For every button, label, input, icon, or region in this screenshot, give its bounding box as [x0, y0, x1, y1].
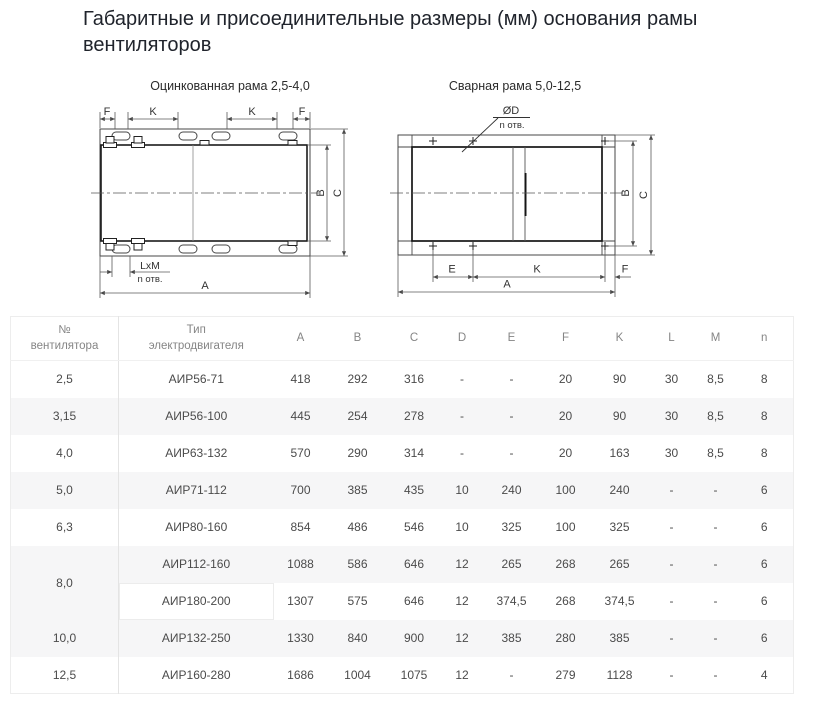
- page-title: Габаритные и присоединительные размеры (…: [83, 6, 743, 59]
- dimension-cell: 900: [388, 620, 441, 657]
- dim-label-c: C: [332, 189, 344, 197]
- dimension-cell: 385: [592, 620, 648, 657]
- dimension-cell: -: [441, 398, 484, 435]
- dimension-cell: 12: [441, 546, 484, 583]
- motor-type-cell: АИР56-71: [119, 361, 274, 398]
- dimension-cell: 8: [736, 361, 794, 398]
- dimension-cell: -: [484, 398, 540, 435]
- dimension-cell: 385: [484, 620, 540, 657]
- table-row: 8,0АИР112-160108858664612265268265--6: [11, 546, 794, 583]
- table-row: 5,0АИР71-11270038543510240100240--6: [11, 472, 794, 509]
- dim-label-f-right: F: [299, 106, 306, 118]
- welded-diagram-title: Сварная рама 5,0-12,5: [449, 79, 581, 93]
- holes-note-right: n отв.: [499, 120, 524, 131]
- dimension-cell: 6: [736, 583, 794, 620]
- dimension-cell: 385: [328, 472, 388, 509]
- dimension-cell: 1128: [592, 657, 648, 694]
- column-header: K: [592, 317, 648, 361]
- column-header: A: [274, 317, 328, 361]
- dimension-cell: 575: [328, 583, 388, 620]
- dimension-cell: 268: [540, 583, 592, 620]
- dimension-cell: 240: [592, 472, 648, 509]
- column-header: n: [736, 317, 794, 361]
- dimension-cell: 486: [328, 509, 388, 546]
- dimension-cell: -: [648, 546, 696, 583]
- dimension-cell: 840: [328, 620, 388, 657]
- dim-label-k-left: K: [149, 106, 157, 118]
- dimension-cell: 8: [736, 398, 794, 435]
- column-header: № вентилятора: [11, 317, 119, 361]
- dimension-cell: 90: [592, 398, 648, 435]
- dimension-cell: 418: [274, 361, 328, 398]
- dim-label-a: A: [503, 279, 511, 291]
- dimension-cell: -: [696, 546, 736, 583]
- dimensions-table-wrapper: № вентилятораТип электродвигателяABCDEFK…: [10, 316, 793, 694]
- dimension-cell: 240: [484, 472, 540, 509]
- dimension-cell: 546: [388, 509, 441, 546]
- dim-label-b: B: [620, 189, 632, 196]
- column-header: L: [648, 317, 696, 361]
- dimension-cell: 1330: [274, 620, 328, 657]
- dimension-cell: 8,5: [696, 361, 736, 398]
- table-row: 12,5АИР160-28016861004107512-2791128--4: [11, 657, 794, 694]
- table-row: 6,3АИР80-16085448654610325100325--6: [11, 509, 794, 546]
- dimension-cell: 1075: [388, 657, 441, 694]
- dimension-cell: 12: [441, 583, 484, 620]
- column-header: D: [441, 317, 484, 361]
- dimension-cell: 325: [484, 509, 540, 546]
- dimension-cell: 12: [441, 620, 484, 657]
- dimension-cell: 12: [441, 657, 484, 694]
- column-header: E: [484, 317, 540, 361]
- catalog-page: Габаритные и присоединительные размеры (…: [0, 0, 818, 702]
- dimension-cell: 1088: [274, 546, 328, 583]
- galvanized-frame-drawing: [91, 129, 319, 256]
- dimension-cell: 6: [736, 509, 794, 546]
- table-body: 2,5АИР56-71418292316--2090308,583,15АИР5…: [11, 361, 794, 694]
- welded-frame-drawing: [390, 118, 625, 256]
- motor-type-cell: АИР112-160: [119, 546, 274, 583]
- dimension-cell: -: [648, 472, 696, 509]
- dimension-cell: -: [484, 435, 540, 472]
- dimension-cell: 30: [648, 398, 696, 435]
- fan-number-cell: 2,5: [11, 361, 119, 398]
- column-header: C: [388, 317, 441, 361]
- dimension-cell: -: [648, 620, 696, 657]
- dimension-cell: 20: [540, 398, 592, 435]
- dimension-cell: -: [441, 435, 484, 472]
- dimension-cell: 20: [540, 361, 592, 398]
- dimension-cell: -: [484, 657, 540, 694]
- dimension-cell: 100: [540, 509, 592, 546]
- table-header-row: № вентилятораТип электродвигателяABCDEFK…: [11, 317, 794, 361]
- dimensions-table: № вентилятораТип электродвигателяABCDEFK…: [10, 316, 794, 694]
- dim-label-k: K: [533, 264, 541, 276]
- dimension-cell: 268: [540, 546, 592, 583]
- dimension-cell: 316: [388, 361, 441, 398]
- dimension-cell: 854: [274, 509, 328, 546]
- dimension-cell: -: [484, 361, 540, 398]
- motor-type-cell: АИР80-160: [119, 509, 274, 546]
- dimension-cell: 646: [388, 546, 441, 583]
- column-header: Тип электродвигателя: [119, 317, 274, 361]
- fan-number-cell: 3,15: [11, 398, 119, 435]
- dimension-cell: 8: [736, 435, 794, 472]
- dimension-cell: 8,5: [696, 398, 736, 435]
- table-row: 10,0АИР132-250133084090012385280385--6: [11, 620, 794, 657]
- dimension-cell: -: [648, 583, 696, 620]
- table-row: 4,0АИР63-132570290314--20163308,58: [11, 435, 794, 472]
- dimension-cell: 6: [736, 546, 794, 583]
- dimension-cell: 10: [441, 509, 484, 546]
- dimension-cell: 374,5: [484, 583, 540, 620]
- dimension-cell: 280: [540, 620, 592, 657]
- motor-type-cell: АИР71-112: [119, 472, 274, 509]
- fan-number-cell: 10,0: [11, 620, 119, 657]
- dimension-cell: 10: [441, 472, 484, 509]
- dimension-cell: 1004: [328, 657, 388, 694]
- dimension-cell: -: [696, 620, 736, 657]
- dimension-cell: 6: [736, 472, 794, 509]
- dimension-cell: 290: [328, 435, 388, 472]
- dimension-cell: 314: [388, 435, 441, 472]
- dim-label-c: C: [638, 191, 650, 199]
- motor-type-cell: АИР63-132: [119, 435, 274, 472]
- dim-label-lxm: LxM: [140, 260, 160, 272]
- dimension-cell: -: [441, 361, 484, 398]
- dimension-cell: 292: [328, 361, 388, 398]
- dimension-cell: 30: [648, 361, 696, 398]
- dim-label-b: B: [315, 189, 327, 196]
- welded-frame-diagram: Сварная рама 5,0-12,5: [385, 76, 690, 313]
- dimension-cell: 700: [274, 472, 328, 509]
- dimension-cell: 435: [388, 472, 441, 509]
- fan-number-cell: 12,5: [11, 657, 119, 694]
- dim-label-diameter: ØD: [503, 105, 520, 117]
- dimension-cell: 1686: [274, 657, 328, 694]
- motor-type-cell: АИР56-100: [119, 398, 274, 435]
- dimension-cell: -: [696, 509, 736, 546]
- dimension-cell: 163: [592, 435, 648, 472]
- fan-number-cell: 8,0: [11, 546, 119, 620]
- column-header: F: [540, 317, 592, 361]
- galvanized-diagram-title: Оцинкованная рама 2,5-4,0: [150, 79, 310, 93]
- dimension-cell: 265: [484, 546, 540, 583]
- column-header: M: [696, 317, 736, 361]
- dim-label-e: E: [448, 264, 455, 276]
- dimension-cell: 20: [540, 435, 592, 472]
- dimension-cell: 265: [592, 546, 648, 583]
- dimension-cell: -: [648, 509, 696, 546]
- motor-type-cell: АИР160-280: [119, 657, 274, 694]
- column-header: B: [328, 317, 388, 361]
- dimension-cell: 6: [736, 620, 794, 657]
- dimension-cell: 646: [388, 583, 441, 620]
- dimension-cell: 586: [328, 546, 388, 583]
- table-row: 2,5АИР56-71418292316--2090308,58: [11, 361, 794, 398]
- dimension-cell: 254: [328, 398, 388, 435]
- dimension-cell: 90: [592, 361, 648, 398]
- fan-number-cell: 6,3: [11, 509, 119, 546]
- dimension-cell: 570: [274, 435, 328, 472]
- motor-type-cell: АИР132-250: [119, 620, 274, 657]
- motor-type-cell: АИР180-200: [119, 583, 274, 620]
- dimension-cell: 1307: [274, 583, 328, 620]
- fan-number-cell: 4,0: [11, 435, 119, 472]
- dimension-cell: 279: [540, 657, 592, 694]
- dimension-cell: 278: [388, 398, 441, 435]
- dimension-cell: 100: [540, 472, 592, 509]
- dimension-cell: 4: [736, 657, 794, 694]
- table-row: 3,15АИР56-100445254278--2090308,58: [11, 398, 794, 435]
- table-row: АИР180-200130757564612374,5268374,5--6: [11, 583, 794, 620]
- dimension-cell: 8,5: [696, 435, 736, 472]
- dim-label-a: A: [201, 280, 209, 292]
- dimension-cell: 445: [274, 398, 328, 435]
- dim-label-f: F: [622, 264, 629, 276]
- dimension-cell: 325: [592, 509, 648, 546]
- dim-label-k-right: K: [248, 106, 256, 118]
- dim-label-f-left: F: [104, 106, 111, 118]
- dimension-cell: -: [696, 583, 736, 620]
- dimension-cell: -: [648, 657, 696, 694]
- dimension-cell: 30: [648, 435, 696, 472]
- dimension-cell: 374,5: [592, 583, 648, 620]
- fan-number-cell: 5,0: [11, 472, 119, 509]
- dimension-cell: -: [696, 657, 736, 694]
- holes-note-left: n отв.: [137, 274, 162, 285]
- dimension-cell: -: [696, 472, 736, 509]
- galvanized-frame-diagram: Оцинкованная рама 2,5-4,0: [75, 76, 375, 313]
